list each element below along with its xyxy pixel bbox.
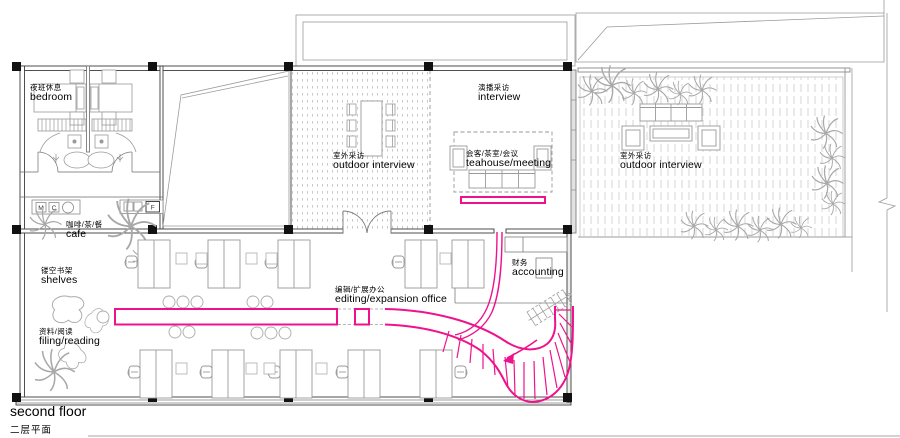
void-roof-slope xyxy=(163,71,289,226)
label-cafe: 咖啡/茶/餐cafe xyxy=(66,221,103,241)
label-outdoor-interview-east: 室外采访outdoor interview xyxy=(620,152,702,172)
sheet-title-en: second floor xyxy=(10,403,86,419)
highlight-bar xyxy=(461,197,545,203)
cafe-counters: M C F xyxy=(20,197,163,214)
label-accounting: 财务accounting xyxy=(512,259,564,279)
sheet-title-zh: 二层平面 xyxy=(10,422,86,436)
floor-plan: M C F xyxy=(0,0,900,438)
floor-plan-drawing: M C F xyxy=(0,0,900,438)
section-break-line xyxy=(852,13,895,312)
stair-treads xyxy=(443,310,572,399)
label-editing-office: 编辑/扩展办公editing/expansion office xyxy=(335,286,447,306)
terrace-west-deck xyxy=(292,70,428,230)
tag-fridge: F xyxy=(151,205,155,212)
label-interview: 演播采访interview xyxy=(478,84,520,104)
highlight-table xyxy=(115,309,384,325)
label-teahouse-meeting: 会客/茶室/会议teahouse/meeting xyxy=(466,150,551,170)
label-outdoor-interview-west: 室外采访outdoor interview xyxy=(333,152,415,172)
label-filing-reading: 资料/阅读filing/reading xyxy=(39,328,100,348)
roof-outline xyxy=(296,0,884,66)
label-bedroom: 夜班休息bedroom xyxy=(30,84,72,104)
label-shelves: 镂空书架shelves xyxy=(41,267,77,287)
sheet-title: second floor 二层平面 xyxy=(10,403,86,436)
bedroom-furniture xyxy=(20,66,160,172)
